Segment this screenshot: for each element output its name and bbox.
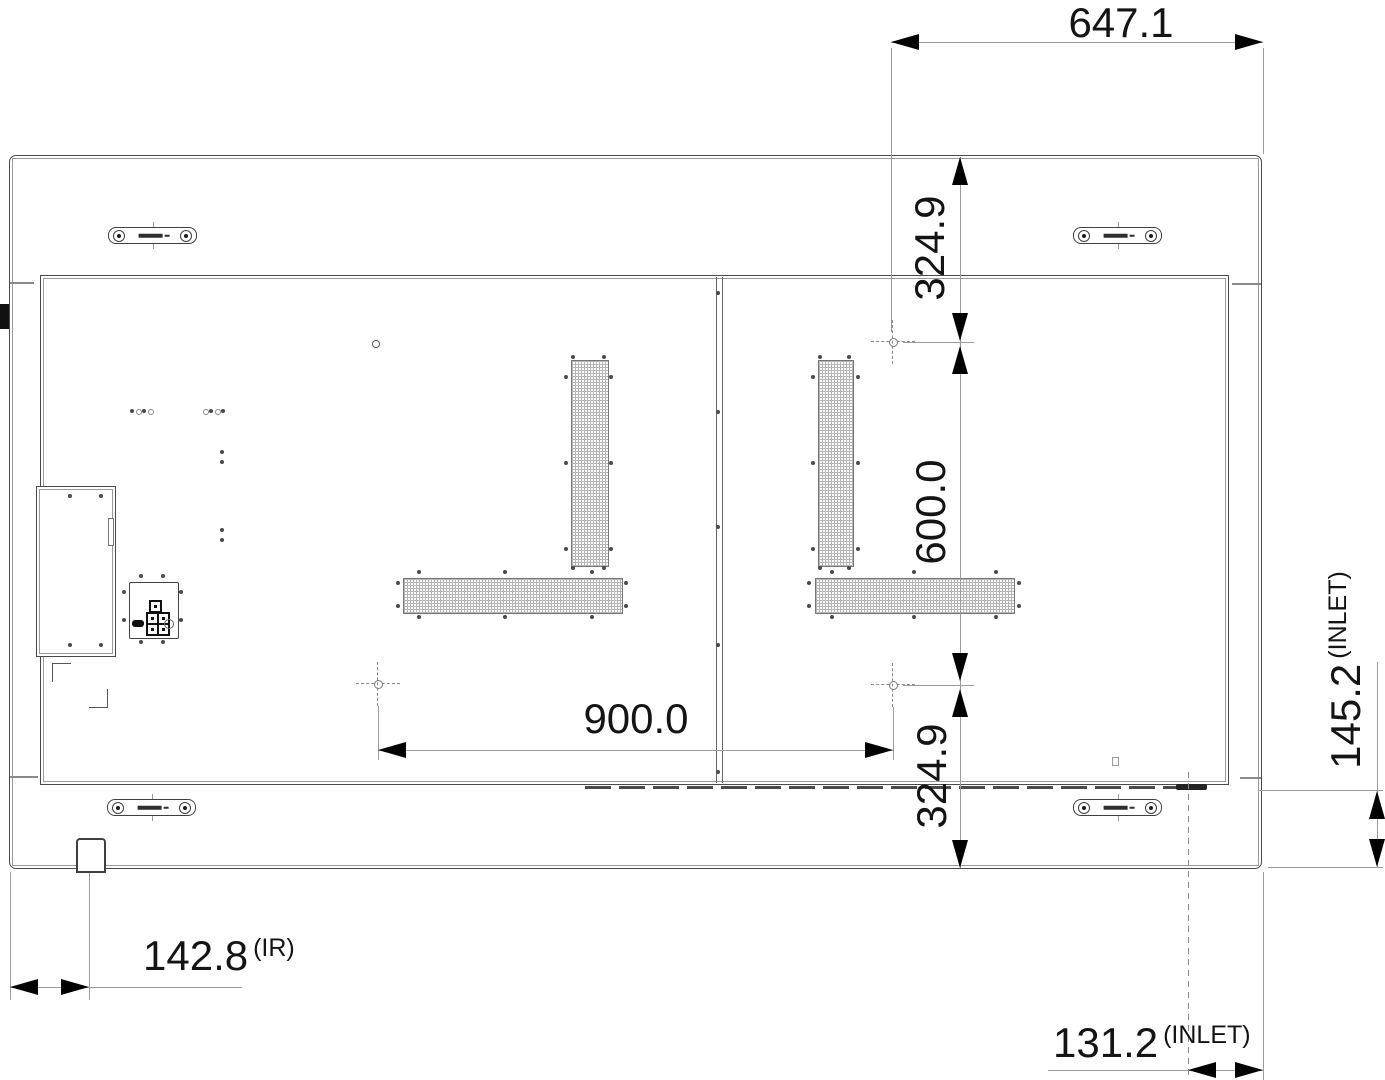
vent-grille-right-vertical [818, 360, 854, 567]
screw-dot [716, 643, 720, 647]
screw-dot [209, 409, 213, 413]
arrow-down-icon [952, 313, 968, 341]
label-bracket-topleft [52, 663, 71, 682]
vent-grille-left-vertical [571, 360, 609, 567]
dim-ir-suffix: (IR) [253, 934, 295, 962]
arrow-up-icon [952, 157, 968, 185]
arrow-right-icon [865, 742, 893, 758]
screw-dot [856, 375, 860, 379]
dim-right-lower-label: 324.9 [910, 723, 954, 828]
arrow-down-icon [952, 653, 968, 681]
arrow-left-icon [378, 742, 406, 758]
screw-dot [847, 566, 851, 570]
dim-inlet-right-suffix: (INLET) [1324, 571, 1352, 659]
screw-dot [68, 643, 72, 647]
handle-label-mark [1103, 233, 1127, 238]
arrow-down-icon [1369, 839, 1385, 867]
vent-grille-left-horizontal [403, 578, 623, 614]
arrow-down-icon [952, 840, 968, 868]
vesa-datum-left [356, 662, 400, 706]
screw-dot [99, 494, 103, 498]
dim-line [10, 987, 242, 988]
screw-dot [203, 409, 209, 415]
handle-screw-icon [179, 802, 191, 814]
screw-dot [856, 461, 860, 465]
screw-dot [148, 409, 154, 415]
screw-dot [818, 566, 822, 570]
handle-screw-icon [1145, 230, 1157, 242]
panel-hole [372, 340, 380, 348]
dim-line [1377, 662, 1378, 867]
dim-inlet-right-value: 145.2 [1322, 664, 1369, 769]
dim-ir-offset-label: 142.8(IR) [143, 934, 295, 984]
screw-dot [994, 615, 998, 619]
bezel-seam-right-top [1232, 283, 1261, 285]
screw-dot [847, 355, 851, 359]
dim-inlet-bottom-value: 131.2 [1053, 1019, 1158, 1066]
dim-line [960, 157, 961, 868]
ir-sensor-window [132, 620, 144, 627]
terminal-slot [108, 518, 114, 546]
screw-dot [179, 618, 183, 622]
arrow-left-icon [891, 34, 919, 50]
screw-dot [912, 570, 916, 574]
arrow-right-icon [61, 979, 89, 995]
screw-dot [142, 409, 146, 413]
handle-bottom-right [1073, 799, 1162, 816]
extension-line [1263, 872, 1264, 1080]
screw-dot [220, 538, 224, 542]
panel-divider [716, 277, 723, 783]
screw-dot [396, 604, 400, 608]
screw-dot [716, 291, 720, 295]
screw-dot [609, 461, 613, 465]
screw-dot [807, 581, 811, 585]
dim-line [378, 750, 893, 751]
screw-dot [590, 615, 594, 619]
screw-dot [602, 355, 606, 359]
screw-dot [220, 450, 224, 454]
screw-dot [130, 409, 134, 413]
screw-dot [624, 604, 628, 608]
screw-dot [564, 375, 568, 379]
handle-label-mark [1103, 805, 1127, 810]
screw-dot [811, 375, 815, 379]
terminal-cover-panel [36, 486, 116, 657]
screw-dot [99, 643, 103, 647]
screw-dot [624, 581, 628, 585]
screw-dot [122, 618, 126, 622]
screw-dot [716, 770, 720, 774]
screw-dot [912, 615, 916, 619]
screw-dot [161, 574, 165, 578]
handle-top-right [1073, 227, 1162, 244]
handle-screw-icon [113, 230, 125, 242]
screw-dot [807, 604, 811, 608]
indicator-circle [164, 619, 174, 629]
screw-dot [609, 375, 613, 379]
extension-line [1263, 48, 1264, 154]
extension-line [89, 871, 90, 1000]
extension-line [1268, 867, 1383, 868]
extension-line [891, 48, 892, 332]
dim-ir-value: 142.8 [143, 932, 248, 979]
screw-dot [68, 494, 72, 498]
handle-screw-icon [112, 802, 124, 814]
screw-dot [602, 566, 606, 570]
dim-center-width-label: 900.0 [561, 697, 711, 741]
screw-dot [571, 355, 575, 359]
control-panel [129, 582, 179, 639]
screw-dot [220, 460, 224, 464]
screw-dot [830, 615, 834, 619]
handle-screw-icon [180, 230, 192, 242]
side-connector-tab [0, 304, 9, 329]
screw-dot [396, 581, 400, 585]
screw-dot [220, 528, 224, 532]
handle-screw-icon [1078, 802, 1090, 814]
arrow-up-icon [952, 346, 968, 374]
handle-screw-icon [1145, 802, 1157, 814]
screw-dot [215, 409, 221, 415]
screw-dot [161, 640, 165, 644]
dim-right-middle-label: 600.0 [909, 459, 953, 564]
ir-receiver-box [76, 838, 106, 873]
screw-dot [179, 590, 183, 594]
screw-dot [564, 461, 568, 465]
handle-label-mark [137, 805, 161, 810]
extension-line [893, 707, 894, 760]
arrow-up-icon [952, 689, 968, 717]
bottom-gasket-strip [585, 786, 1207, 789]
screw-dot [503, 570, 507, 574]
arrow-left-icon [10, 979, 38, 995]
screw-dot [139, 640, 143, 644]
screw-dot [221, 409, 225, 413]
handle-label-mark [138, 233, 162, 238]
screw-dot [716, 410, 720, 414]
technical-drawing-canvas: 647.1 324.9 600.0 324.9 900.0 142.8(IR) … [0, 0, 1385, 1080]
screw-dot [122, 590, 126, 594]
handle-top-left [108, 227, 197, 244]
screw-dot [856, 547, 860, 551]
screw-dot [811, 547, 815, 551]
dim-inlet-right-box: 145.2(INLET) [1327, 520, 1371, 820]
screw-dot [571, 566, 575, 570]
dim-inlet-bottom-suffix: (INLET) [1163, 1021, 1251, 1049]
screw-dot [994, 570, 998, 574]
dim-right-lower-box: 324.9 [910, 676, 954, 876]
latch-mark [1112, 757, 1119, 766]
handle-bottom-left [107, 799, 196, 816]
screw-dot [139, 574, 143, 578]
screw-dot [564, 547, 568, 551]
screw-dot [716, 525, 720, 529]
screw-dot [609, 547, 613, 551]
screw-dot [830, 570, 834, 574]
screw-dot [590, 570, 594, 574]
bezel-seam-right-bottom [1240, 777, 1261, 779]
dim-right-middle-box: 600.0 [909, 412, 953, 612]
bezel-seam-left-bottom [10, 776, 38, 778]
arrow-up-icon [1369, 791, 1385, 819]
screw-dot [136, 409, 142, 415]
bezel-seam-left-top [10, 282, 34, 284]
dim-inlet-bottom-label: 131.2(INLET) [1053, 1021, 1251, 1071]
dim-right-upper-box: 324.9 [908, 148, 952, 348]
screw-dot [1017, 604, 1021, 608]
screw-dot [417, 615, 421, 619]
ac-inlet [1176, 784, 1207, 790]
screw-dot [1017, 581, 1021, 585]
label-bracket-bottomright [89, 689, 108, 708]
dim-inlet-right-label: 145.2(INLET) [1324, 571, 1374, 769]
dim-right-upper-label: 324.9 [908, 195, 952, 300]
screw-dot [417, 570, 421, 574]
screw-dot [811, 461, 815, 465]
screw-dot [818, 355, 822, 359]
handle-screw-icon [1078, 230, 1090, 242]
dim-top-width-label: 647.1 [1046, 1, 1196, 45]
screw-dot [503, 615, 507, 619]
arrow-right-icon [1235, 34, 1263, 50]
